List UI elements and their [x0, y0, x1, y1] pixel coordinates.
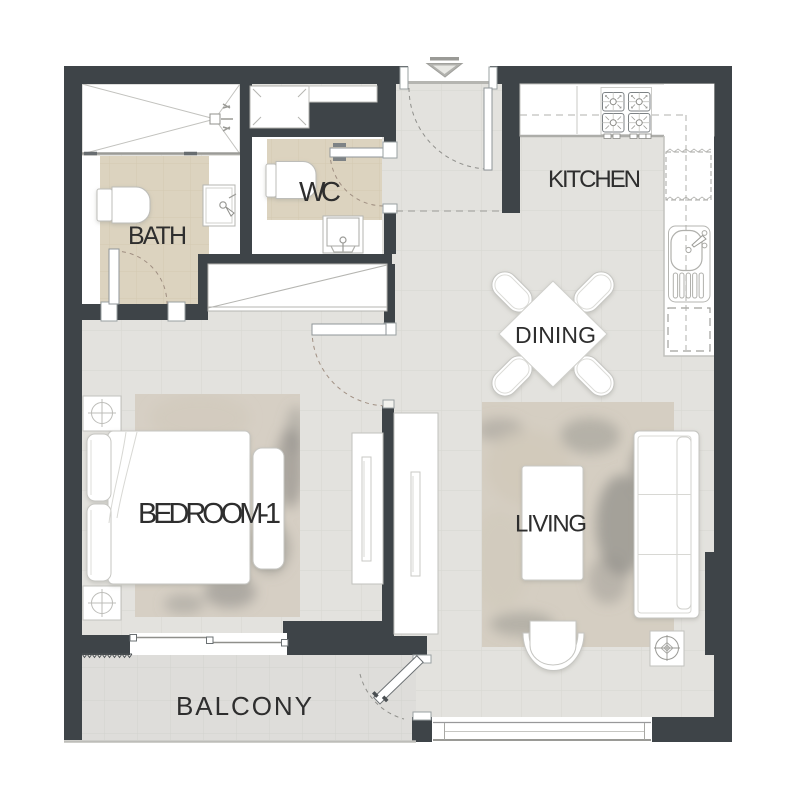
- svg-text:BATH: BATH: [128, 222, 188, 250]
- svg-text:WC: WC: [299, 176, 341, 207]
- svg-text:BEDROOM-1: BEDROOM-1: [138, 498, 282, 530]
- svg-text:BALCONY: BALCONY: [176, 691, 313, 721]
- svg-text:KITCHEN: KITCHEN: [548, 166, 642, 193]
- svg-text:LIVING: LIVING: [515, 511, 588, 538]
- svg-text:DINING: DINING: [515, 322, 597, 348]
